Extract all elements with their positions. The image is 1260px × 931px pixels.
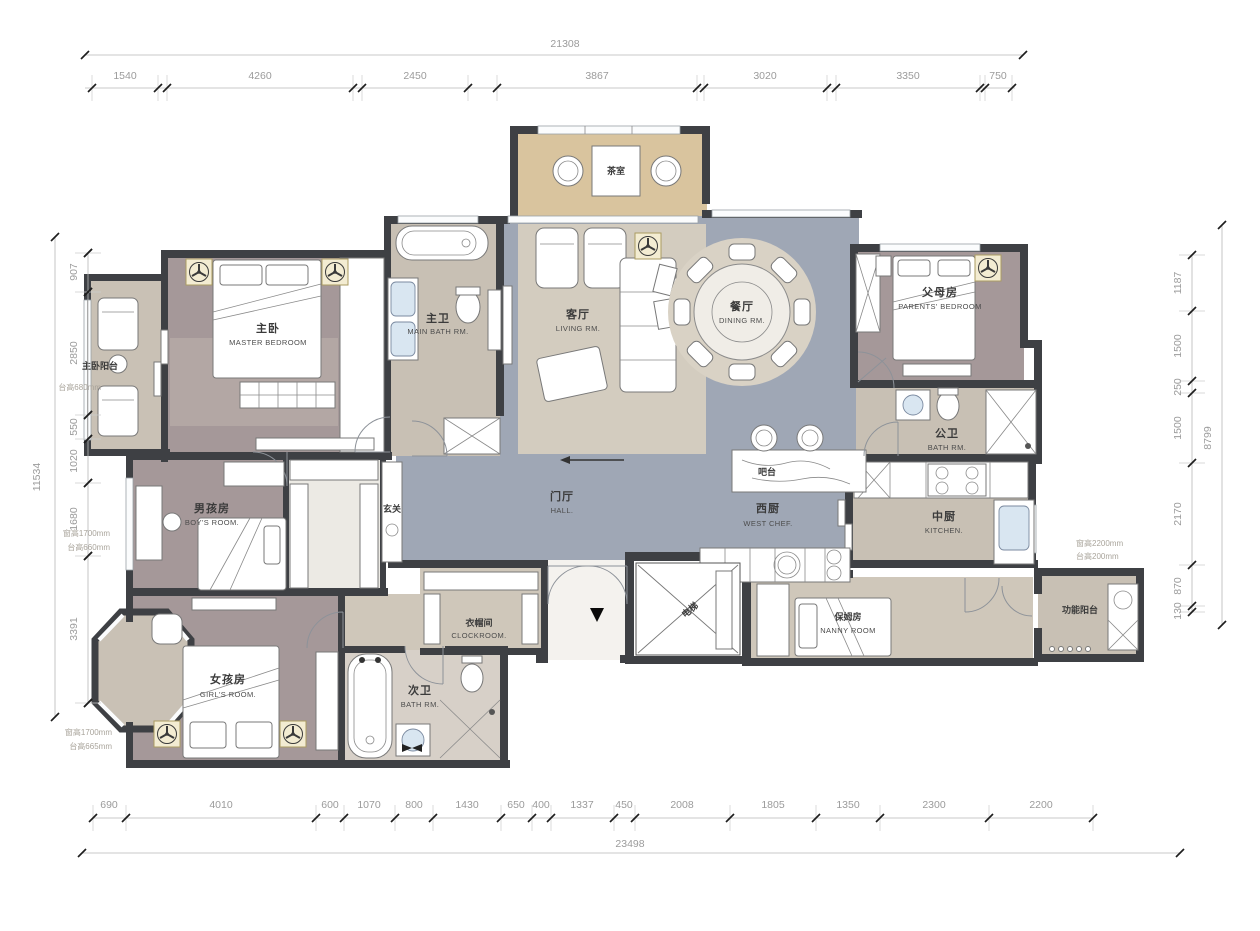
note-kitchen-sill: 台高200mm (1076, 551, 1119, 561)
dim-top-seg: 3020 (753, 70, 777, 82)
master-wardrobe (340, 258, 384, 452)
dim-bottom-seg: 1337 (570, 799, 594, 811)
lounge-chair (98, 298, 138, 350)
nanny-closet (757, 584, 789, 656)
bar-counter (732, 450, 866, 492)
dim-left-seg: 3391 (68, 617, 80, 641)
ceiling-fan-icon (322, 259, 348, 285)
dining-window (712, 210, 850, 217)
tea-stool (651, 156, 681, 186)
entry-lobby-floor (545, 560, 629, 660)
dim-bottom-seg: 400 (532, 799, 550, 811)
dim-bottom-seg: 690 (100, 799, 118, 811)
dim-bottom-seg: 4010 (209, 799, 233, 811)
nightstand (876, 256, 891, 276)
dim-top-seg: 3867 (585, 70, 609, 82)
room-label-west-kitchen-en: WEST CHEF. (743, 519, 792, 528)
girls-dresser (192, 598, 276, 610)
room-label-living-zh: 客厅 (565, 307, 590, 321)
room-label-parents-zh: 父母房 (921, 285, 958, 299)
boys-wardrobe (224, 462, 284, 486)
main-bath-window (398, 216, 478, 223)
dim-left-seg: 550 (68, 418, 80, 436)
ceiling-fan-icon (975, 255, 1001, 281)
parents-window (880, 244, 980, 251)
dim-bottom-seg: 1805 (761, 799, 785, 811)
room-label-parents-en: PARENTS' BEDROOM (898, 302, 982, 311)
room-label-dining-zh: 餐厅 (729, 299, 754, 313)
toilet (461, 664, 483, 692)
balcony-slider (154, 362, 161, 396)
dim-right-seg: 2170 (1172, 502, 1184, 526)
floor-plan-page: 主卧 MASTER BEDROOM 主卧阳台 主卫 MAIN BATH RM. … (0, 0, 1260, 931)
dim-bottom-seg: 2008 (670, 799, 694, 811)
room-label-main-bath-zh: 主卫 (426, 311, 450, 325)
sliding-door (838, 500, 845, 526)
room-label-girls-en: GIRL'S ROOM. (200, 690, 256, 699)
dim-left-seg: 907 (68, 263, 80, 281)
dim-bottom-total: 23498 (615, 838, 644, 850)
function-balcony-furniture (1108, 584, 1138, 650)
room-label-public-bath-zh: 公卫 (935, 427, 959, 440)
tea-stool (553, 156, 583, 186)
ceiling-fan-icon (186, 259, 212, 285)
dim-bottom-seg: 1070 (357, 799, 381, 811)
floor-plan-svg: 主卧 MASTER BEDROOM 主卧阳台 主卫 MAIN BATH RM. … (0, 0, 1260, 931)
washer (1108, 584, 1138, 650)
room-label-master-zh: 主卧 (256, 321, 280, 335)
room-label-cloakroom-en: CLOCKROOM. (451, 631, 506, 640)
lounge-chair (98, 386, 138, 436)
room-label-hall-en: HALL. (551, 506, 574, 515)
toilet (937, 392, 959, 420)
note-girls-sill: 台高665mm (69, 741, 112, 751)
pouf (152, 614, 182, 644)
bar-stool (751, 425, 777, 451)
dim-right-seg: 870 (1172, 577, 1184, 595)
toilet (456, 291, 480, 323)
ceiling-fan-icon (280, 721, 306, 747)
ceiling-fan-icon (154, 721, 180, 747)
armchair (536, 228, 578, 288)
room-label-dining-en: DINING RM. (719, 316, 765, 325)
room-label-hall-zh: 门厅 (550, 489, 574, 503)
dim-left-total: 11534 (31, 463, 43, 492)
dim-bottom-seg: 1430 (455, 799, 479, 811)
room-label-cloakroom-zh: 衣帽间 (465, 617, 492, 628)
note-boys-sill: 台高660mm (67, 542, 110, 552)
dim-left-seg: 1680 (68, 507, 80, 531)
dim-top-total: 21308 (550, 38, 579, 50)
bar-stool (797, 425, 823, 451)
room-label-second-bath-zh: 次卫 (408, 683, 432, 697)
room-label-kitchen-zh: 中厨 (932, 509, 956, 523)
room-label-main-bath-en: MAIN BATH RM. (407, 327, 468, 336)
dim-top-seg: 750 (989, 70, 1007, 82)
dim-bottom-seg: 2200 (1029, 799, 1053, 811)
dim-left-seg: 1020 (68, 449, 80, 473)
room-label-bar: 吧台 (758, 466, 776, 477)
bath-cabinet (488, 290, 501, 350)
room-label-nanny-zh: 保姆房 (833, 611, 861, 622)
room-label-function-balcony: 功能阳台 (1062, 604, 1098, 615)
tv-cabinet (503, 286, 512, 364)
balcony-slider (161, 330, 168, 364)
living-window-band (508, 216, 698, 223)
room-label-second-bath-en: BATH RM. (401, 700, 439, 709)
dim-right-seg: 130 (1172, 602, 1184, 620)
dim-bottom-seg: 650 (507, 799, 525, 811)
note-girls-window-height: 窗高1700mm (65, 727, 112, 737)
dim-left-seg: 2850 (68, 341, 80, 365)
room-label-nanny-en: NANNY ROOM (820, 626, 876, 635)
desk-chair (163, 513, 181, 531)
dim-right-seg: 1500 (1172, 334, 1184, 358)
dim-bottom-seg: 2300 (922, 799, 946, 811)
tea-window (538, 126, 680, 134)
nanny-floor (751, 577, 1033, 661)
room-label-girls-zh: 女孩房 (210, 672, 246, 686)
room-label-master-en: MASTER BEDROOM (229, 338, 307, 347)
dim-right-total: 8799 (1202, 426, 1214, 450)
dim-right-seg: 1187 (1172, 272, 1184, 295)
room-label-west-kitchen-zh: 西厨 (756, 502, 780, 515)
dim-top-seg: 2450 (403, 70, 427, 82)
room-label-master-balcony: 主卧阳台 (82, 360, 118, 371)
room-label-tea: 茶室 (606, 165, 625, 176)
sliding-door (845, 524, 852, 550)
bench (903, 364, 971, 376)
corridor-floor (343, 594, 423, 654)
room-label-foyer: 玄关 (383, 503, 401, 514)
note-kitchen-window-height: 窗高2200mm (1076, 538, 1123, 548)
dim-bottom-seg: 1350 (836, 799, 860, 811)
dim-right-seg: 1500 (1172, 416, 1184, 440)
room-label-boys-zh: 男孩房 (194, 501, 230, 515)
dim-bottom-seg: 800 (405, 799, 423, 811)
ceiling-fan-icon (635, 233, 661, 259)
room-label-boys-en: BOY'S ROOM. (185, 518, 239, 527)
dim-top-seg: 1540 (113, 70, 137, 82)
note-balcony-sill: 台高680mm (58, 382, 101, 392)
room-label-living-en: LIVING RM. (556, 324, 600, 333)
room-label-public-bath-en: BATH RM. (928, 443, 966, 452)
dim-top-seg: 4260 (248, 70, 272, 82)
dim-bottom-seg: 450 (615, 799, 633, 811)
boys-window (126, 478, 133, 570)
room-label-kitchen-en: KITCHEN. (925, 526, 963, 535)
dim-bottom-seg: 600 (321, 799, 339, 811)
girls-closet (316, 652, 338, 750)
dim-right-seg: 250 (1172, 378, 1184, 396)
boys-desk (136, 486, 162, 560)
dim-top-seg: 3350 (896, 70, 920, 82)
